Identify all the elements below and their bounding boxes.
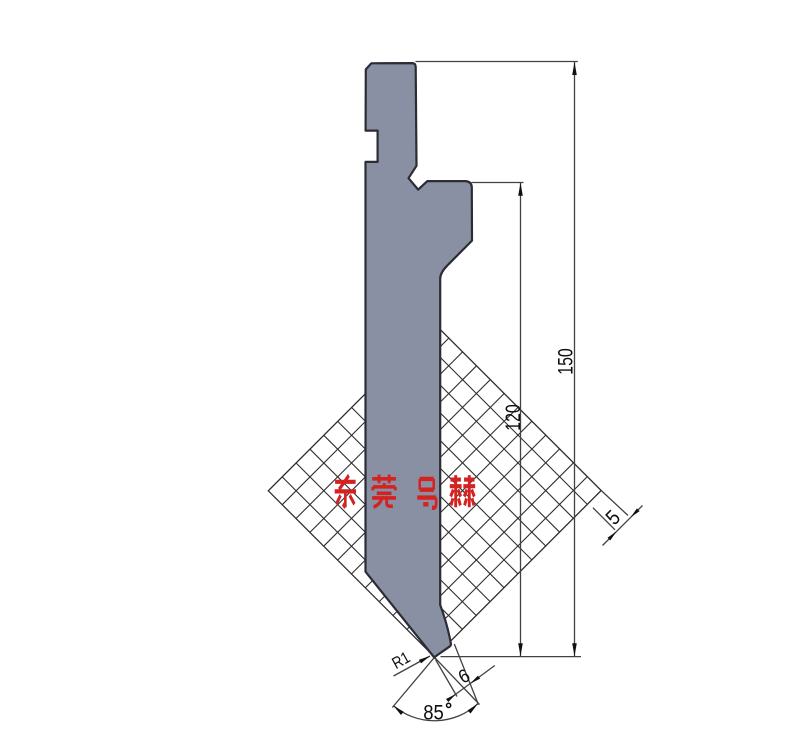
svg-text:120: 120	[502, 404, 525, 431]
svg-text:85: 85	[423, 701, 444, 724]
svg-text:150: 150	[554, 348, 577, 375]
